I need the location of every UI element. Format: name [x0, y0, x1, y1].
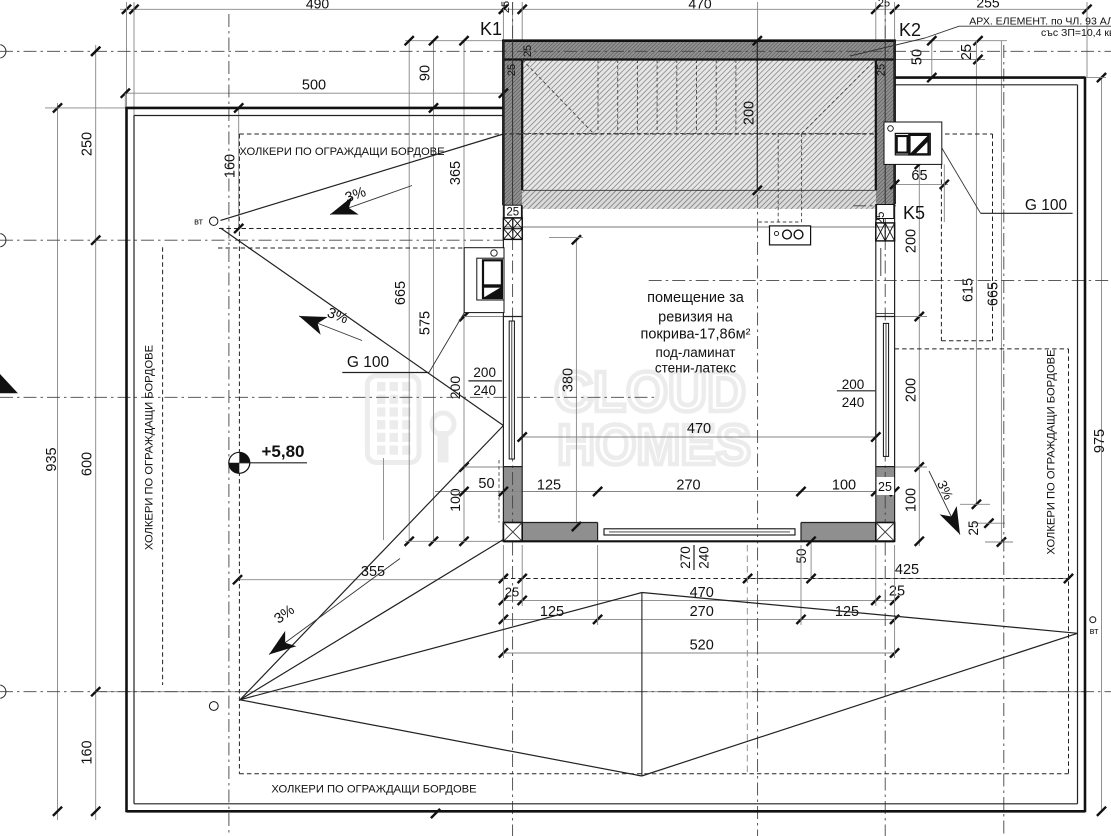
svg-text:600: 600: [80, 452, 96, 476]
svg-text:240: 240: [697, 546, 712, 569]
svg-text:25: 25: [878, 0, 890, 10]
svg-text:125: 125: [537, 478, 561, 494]
svg-text:500: 500: [302, 78, 326, 94]
svg-text:425: 425: [895, 562, 919, 578]
svg-text:615: 615: [960, 278, 976, 302]
svg-text:380: 380: [560, 368, 576, 392]
svg-text:200: 200: [842, 377, 865, 392]
svg-text:25: 25: [959, 44, 975, 60]
svg-text:покрива-17,86м²: покрива-17,86м²: [641, 327, 751, 343]
svg-text:25: 25: [522, 45, 534, 57]
svg-text:250: 250: [80, 132, 96, 156]
svg-text:665: 665: [985, 282, 1001, 306]
svg-text:стени-латекс: стени-латекс: [655, 361, 736, 376]
svg-text:ХОЛКЕРИ ПО ОГРАЖДАЩИ БОРДОВЕ: ХОЛКЕРИ ПО ОГРАЖДАЩИ БОРДОВЕ: [1046, 349, 1058, 554]
svg-text:470: 470: [687, 421, 711, 437]
svg-text:25: 25: [506, 64, 518, 76]
svg-text:K5: K5: [903, 203, 925, 223]
svg-text:25: 25: [505, 585, 519, 600]
svg-text:90: 90: [418, 65, 434, 81]
svg-text:G 100: G 100: [347, 354, 390, 371]
svg-text:+5,80: +5,80: [261, 442, 304, 461]
svg-text:270: 270: [690, 604, 714, 620]
svg-text:G 100: G 100: [1025, 197, 1068, 214]
svg-text:със ЗП=10,4 кв: със ЗП=10,4 кв: [1041, 27, 1111, 39]
svg-text:490: 490: [306, 0, 330, 12]
svg-text:вт: вт: [194, 217, 203, 227]
svg-text:25: 25: [889, 584, 905, 600]
svg-text:25: 25: [878, 480, 892, 494]
svg-text:125: 125: [540, 604, 564, 620]
svg-text:100: 100: [903, 488, 919, 512]
svg-text:25: 25: [876, 64, 888, 76]
svg-text:200: 200: [741, 101, 757, 125]
svg-text:100: 100: [832, 478, 856, 494]
svg-text:200: 200: [473, 365, 496, 380]
svg-text:975: 975: [1092, 429, 1108, 453]
svg-text:255: 255: [976, 0, 1000, 11]
svg-text:АРХ. ЕЛЕМЕНТ. по ЧЛ. 93 АЛ.: АРХ. ЕЛЕМЕНТ. по ЧЛ. 93 АЛ.: [969, 16, 1111, 28]
svg-text:K1: K1: [480, 19, 502, 39]
svg-text:25: 25: [506, 206, 519, 218]
svg-text:200: 200: [903, 378, 919, 402]
svg-text:25: 25: [966, 520, 981, 535]
svg-text:ревизия на: ревизия на: [658, 310, 734, 326]
svg-text:365: 365: [448, 161, 464, 185]
svg-text:935: 935: [44, 447, 60, 471]
svg-text:ХОЛКЕРИ ПО ОГРАЖДАЩИ БОРДОВЕ: ХОЛКЕРИ ПО ОГРАЖДАЩИ БОРДОВЕ: [271, 784, 476, 796]
svg-text:665: 665: [393, 281, 409, 305]
svg-text:25: 25: [500, 1, 512, 13]
svg-text:50: 50: [478, 476, 494, 492]
svg-text:240: 240: [473, 383, 496, 398]
svg-text:K2: K2: [899, 20, 921, 40]
svg-text:вт: вт: [1090, 626, 1099, 636]
svg-text:520: 520: [690, 638, 714, 654]
svg-text:240: 240: [842, 395, 865, 410]
svg-text:160: 160: [223, 154, 239, 178]
svg-text:HOMES: HOMES: [557, 413, 751, 477]
svg-text:50: 50: [794, 548, 809, 563]
svg-text:160: 160: [80, 740, 96, 764]
svg-text:270: 270: [678, 546, 693, 569]
svg-text:ХОЛКЕРИ ПО ОГРАЖДАЩИ БОРДОВЕ: ХОЛКЕРИ ПО ОГРАЖДАЩИ БОРДОВЕ: [239, 146, 444, 158]
svg-text:помещение за: помещение за: [647, 290, 745, 306]
svg-text:200: 200: [903, 229, 919, 253]
svg-text:470: 470: [688, 0, 712, 12]
svg-text:под-ламинат: под-ламинат: [656, 345, 736, 360]
svg-text:ХОЛКЕРИ ПО ОГРАЖДАЩИ БОРДОВЕ: ХОЛКЕРИ ПО ОГРАЖДАЩИ БОРДОВЕ: [143, 345, 155, 550]
svg-text:575: 575: [418, 311, 434, 335]
svg-text:270: 270: [676, 478, 700, 494]
